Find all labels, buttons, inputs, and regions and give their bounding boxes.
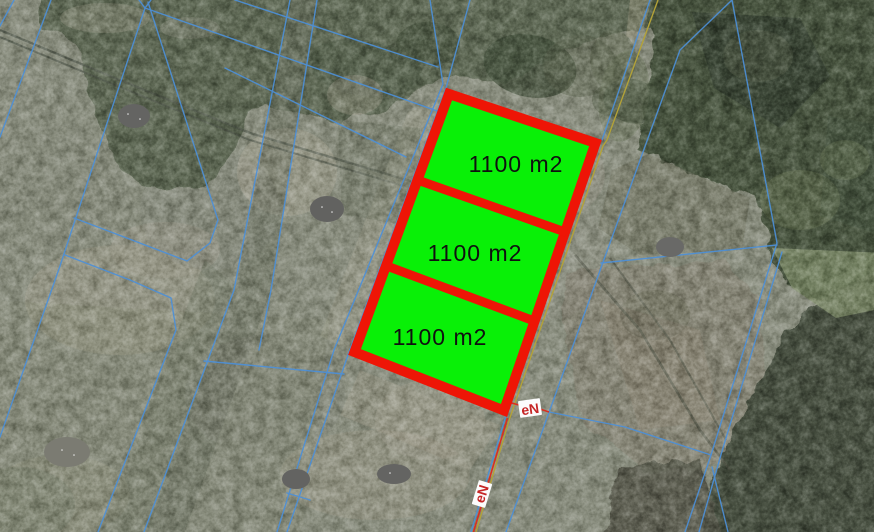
svg-text:eN: eN	[520, 400, 540, 418]
svg-text:1100 m2: 1100 m2	[469, 151, 564, 177]
svg-text:1100 m2: 1100 m2	[428, 240, 523, 266]
svg-text:1100 m2: 1100 m2	[393, 324, 488, 350]
